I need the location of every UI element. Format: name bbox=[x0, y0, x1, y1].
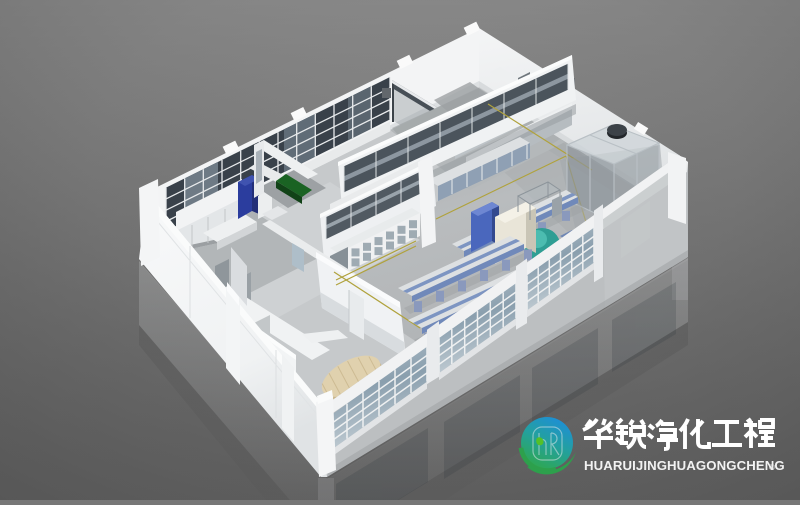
svg-text:HUARUIJINGHUAGONGCHENG: HUARUIJINGHUAGONGCHENG bbox=[584, 458, 785, 473]
svg-text:®: ® bbox=[769, 463, 775, 472]
